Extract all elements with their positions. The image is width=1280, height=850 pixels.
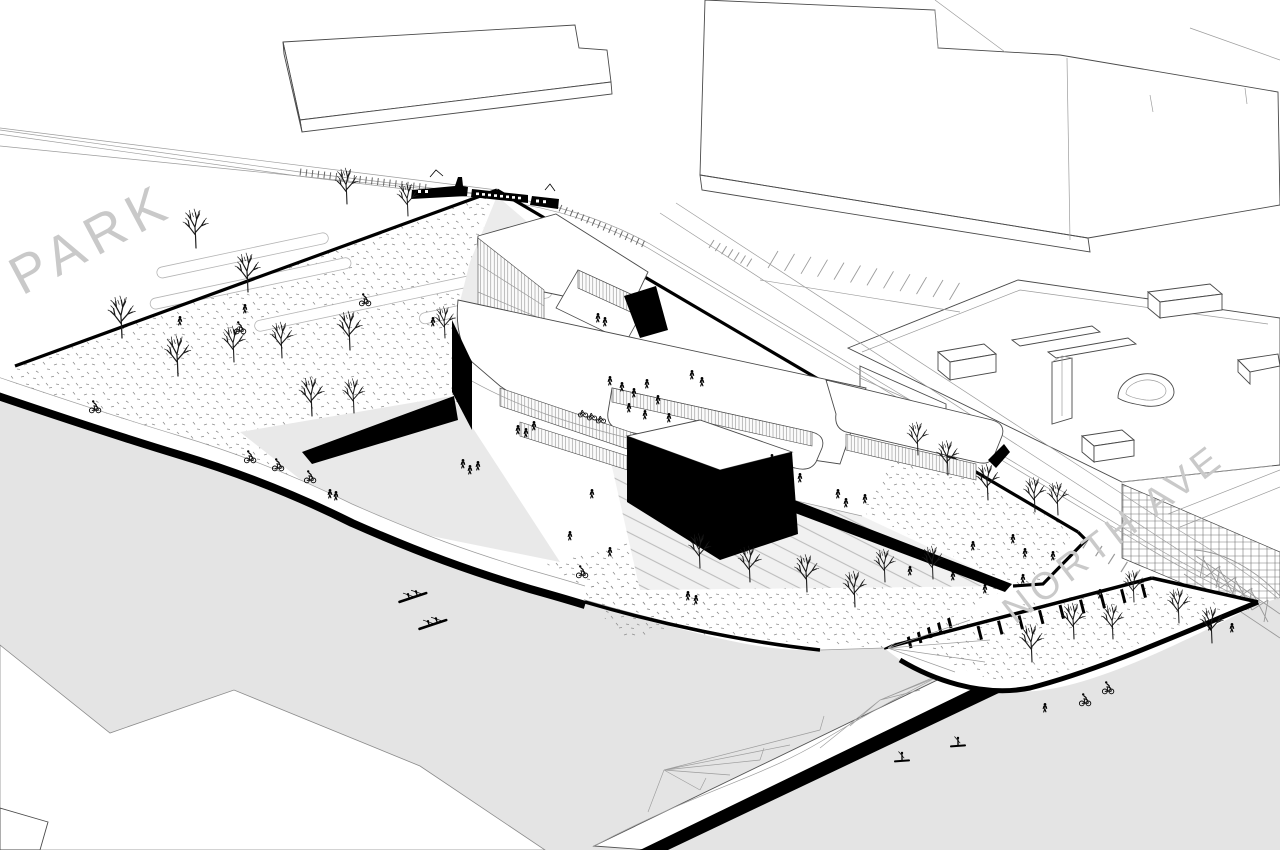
factory-parking-stalls <box>760 251 960 312</box>
rail-corridor-line <box>0 146 497 196</box>
tree <box>335 168 358 204</box>
context-slab-north <box>700 0 1280 252</box>
rail-corridor-line <box>0 128 497 190</box>
site-rendering: PARK NORTH AVE <box>0 0 1280 850</box>
tree <box>183 209 208 248</box>
context-slab-northwest <box>283 25 612 132</box>
park-label: PARK <box>0 171 183 306</box>
crosswalk <box>709 240 752 267</box>
axonometric-drawing: PARK NORTH AVE <box>0 0 1280 850</box>
